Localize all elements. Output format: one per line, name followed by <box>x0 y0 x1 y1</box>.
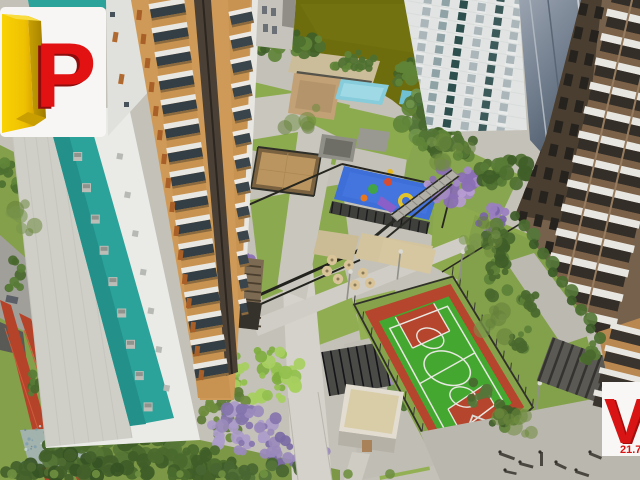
svg-text:21.7: 21.7 <box>620 444 640 456</box>
svg-text:P: P <box>35 25 96 127</box>
